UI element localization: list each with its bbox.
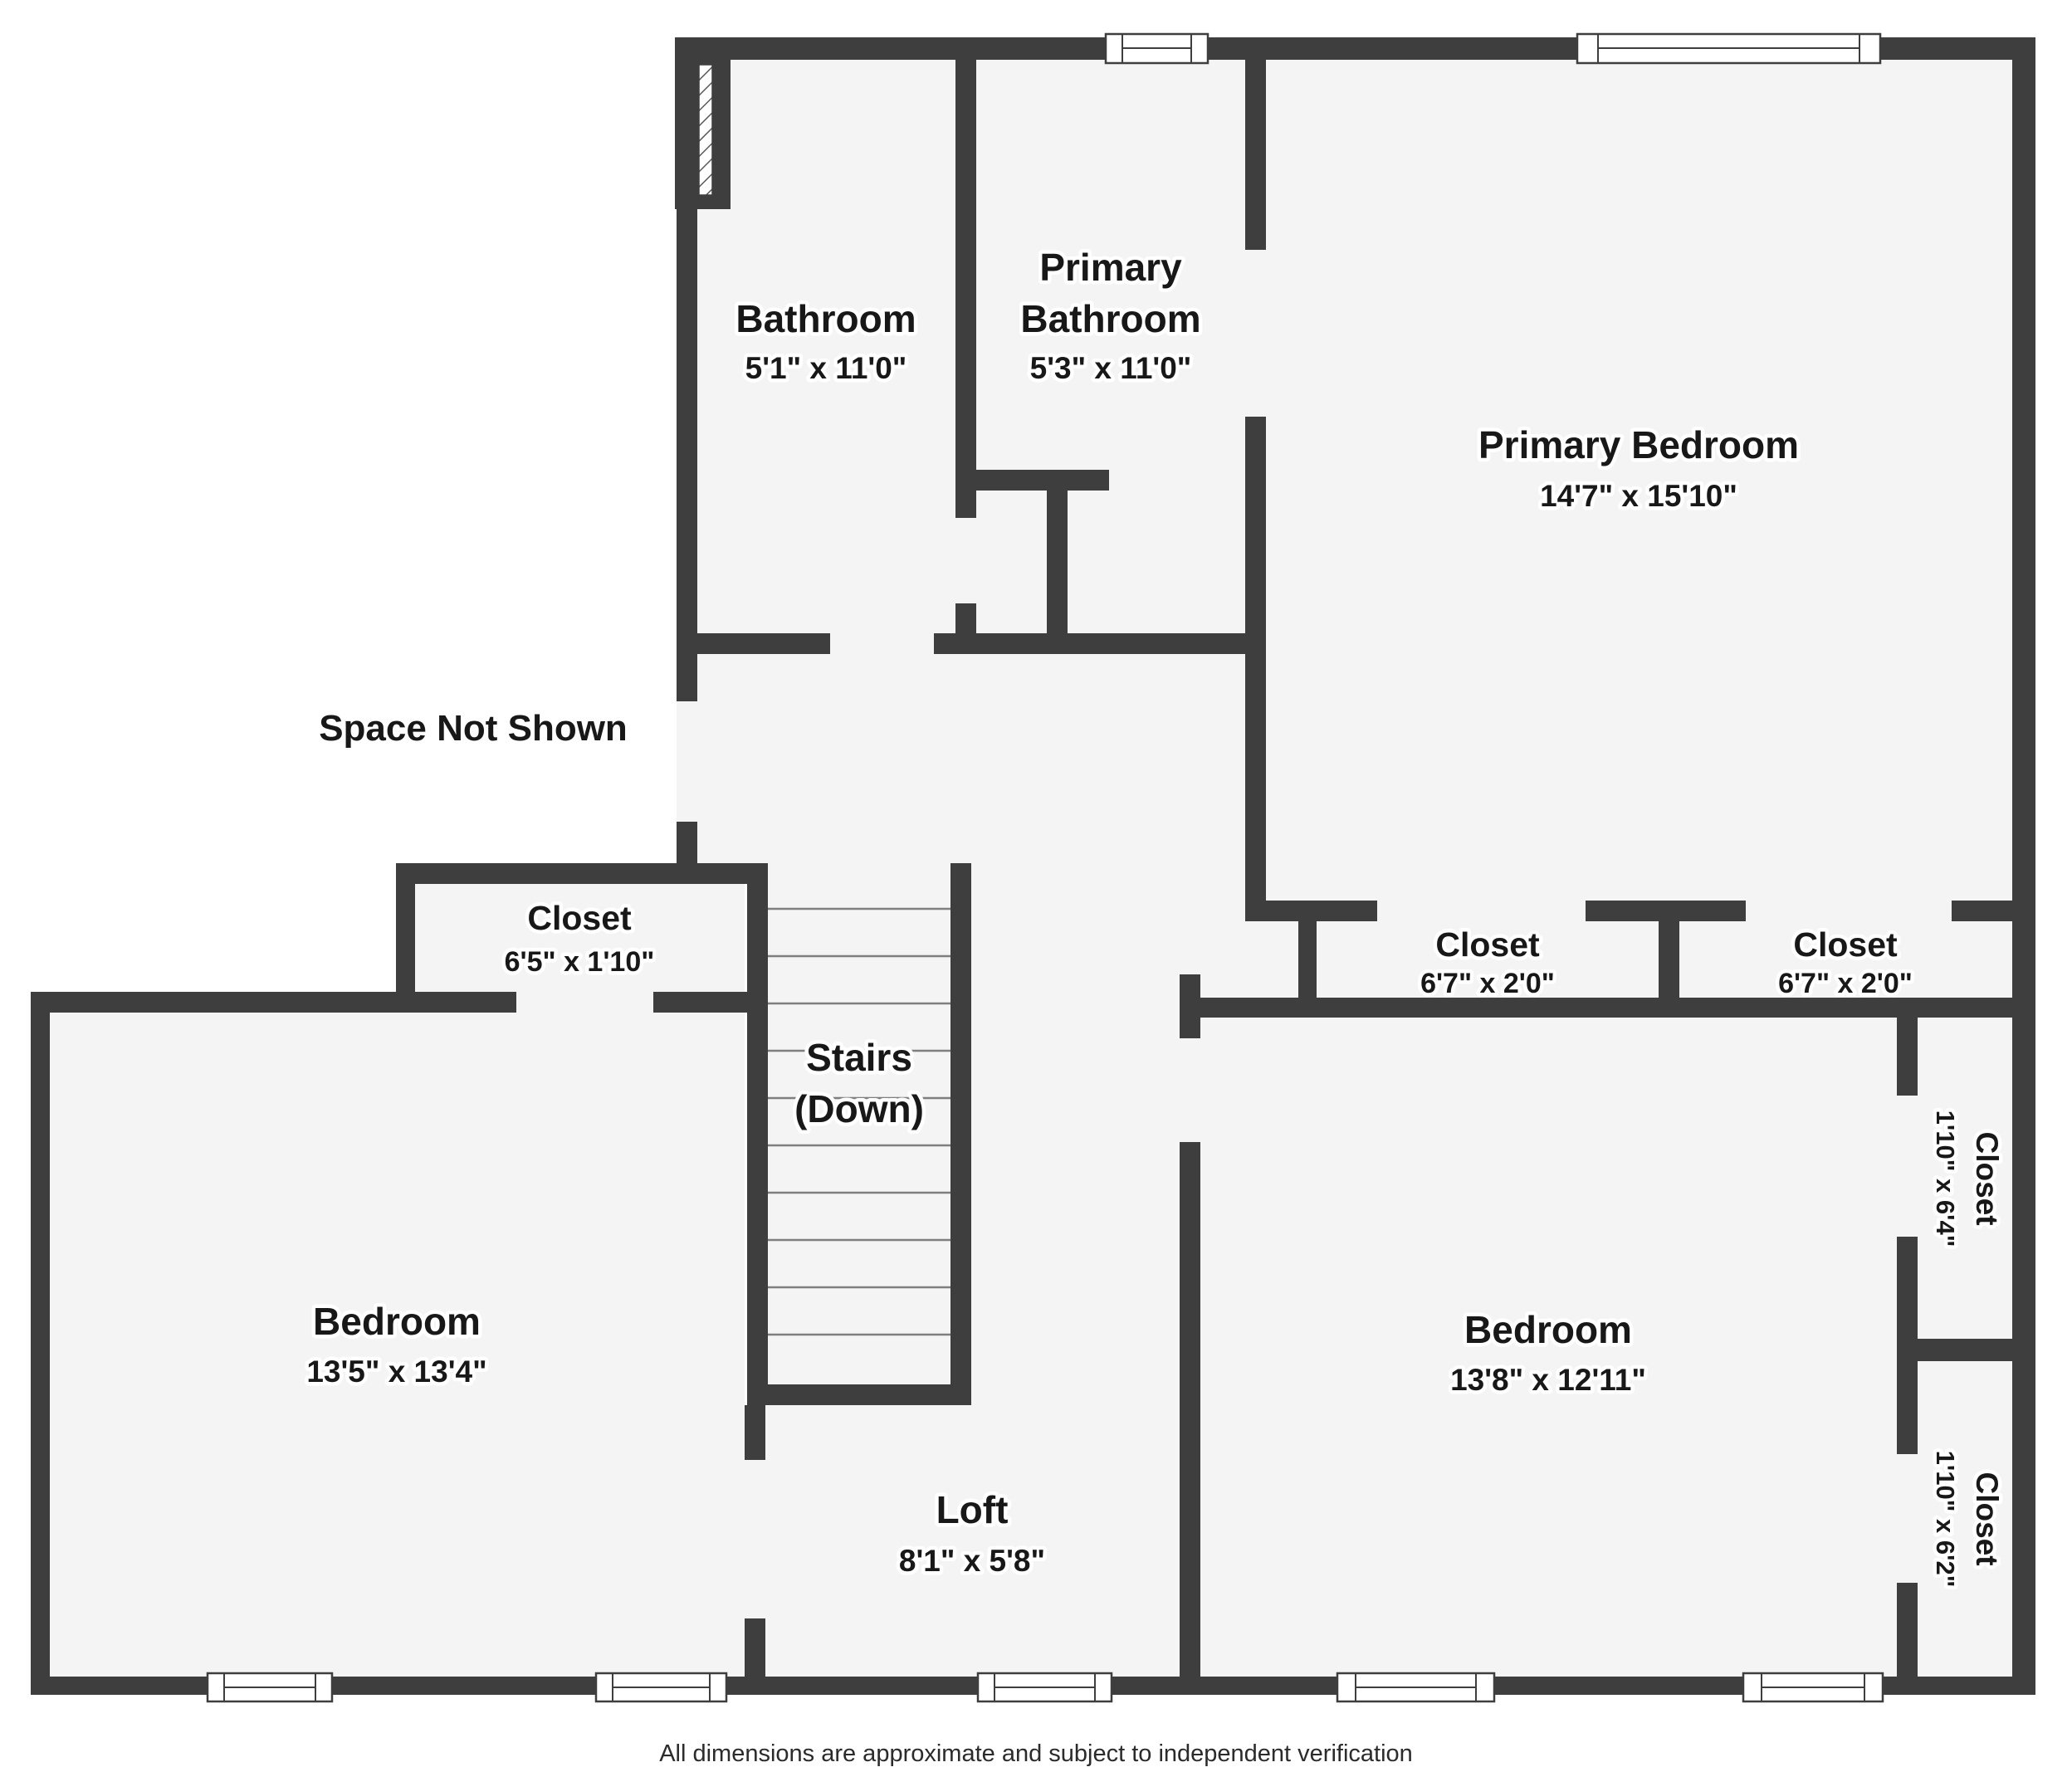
label-stairs-line1: Stairs <box>806 1036 912 1079</box>
label-closet-primary-right-name: Closet <box>1793 925 1898 964</box>
door-opening-bathroom <box>830 633 934 654</box>
label-bathroom-dims: 5'1" x 11'0" <box>745 351 907 385</box>
window <box>1337 1673 1494 1701</box>
door-opening-primary-bathroom <box>1245 250 1266 417</box>
wall-exterior-right <box>2012 37 2035 1695</box>
wall-primary-bedroom-left <box>1245 37 1266 921</box>
footer-disclaimer: All dimensions are approximate and subje… <box>659 1740 1413 1767</box>
wall-stairwell-left <box>747 863 768 1405</box>
window <box>1106 34 1208 63</box>
label-closet-primary-left-name: Closet <box>1435 925 1540 964</box>
room-area-hall-landing <box>697 633 1245 863</box>
label-bedroom-right-dims: 13'8" x 12'11" <box>1450 1363 1646 1397</box>
label-closet-right-upper-name: Closet <box>1970 1131 2004 1225</box>
label-loft-dims: 8'1" x 5'8" <box>899 1544 1045 1578</box>
label-closet-primary-right-dims: 6'7" x 2'0" <box>1778 968 1913 999</box>
wall-closet-hall-left <box>396 863 415 1013</box>
wall-closet-row-bottom <box>1180 998 2035 1018</box>
room-area-corridor-lower <box>971 998 1180 1405</box>
label-loft-name: Loft <box>936 1488 1009 1531</box>
wall-vestibule-stub <box>966 470 1109 491</box>
label-bathroom-name: Bathroom <box>735 297 916 340</box>
wall-bedroom-left-top <box>31 992 764 1013</box>
window <box>208 1673 332 1701</box>
wall-stairwell-right <box>950 863 971 1405</box>
label-closet-hall-dims: 6'5" x 1'10" <box>505 946 655 978</box>
label-closet-right-upper-dims: 1'10" x 6'4" <box>1931 1111 1960 1247</box>
wall-stairwell-bottom <box>747 1384 971 1405</box>
wall-closet-hall-top <box>396 863 764 884</box>
door-opening-closet-primary-right <box>1746 901 1952 921</box>
label-space-not-shown: Space Not Shown <box>319 708 628 749</box>
label-stairs-line2: (Down) <box>794 1087 924 1130</box>
door-opening-closet-primary-left <box>1377 901 1586 921</box>
wall-closet-primary-left-wall <box>1298 921 1317 998</box>
room-area-bedroom-left <box>50 1013 745 1677</box>
door-opening-loft-bedroom <box>745 1460 765 1618</box>
window <box>596 1673 726 1701</box>
wall-bedroom-left-left <box>31 992 50 1695</box>
label-bedroom-left-dims: 13'5" x 13'4" <box>306 1355 486 1389</box>
floor-plan-canvas: Bathroom 5'1" x 11'0" Primary Bathroom 5… <box>0 0 2072 1772</box>
door-opening-hall-left <box>677 701 697 822</box>
label-closet-primary-left-dims: 6'7" x 2'0" <box>1420 968 1555 999</box>
label-primary-bathroom-name2: Bathroom <box>1020 297 1200 340</box>
label-closet-right-lower-dims: 1'10" x 6'2" <box>1931 1451 1960 1588</box>
label-closet-hall-name: Closet <box>527 899 632 937</box>
room-area-loft <box>765 1405 1180 1677</box>
window <box>1743 1673 1883 1701</box>
wall-vestibule-nook <box>1047 491 1068 633</box>
room-area-corridor-upper <box>971 863 1245 921</box>
label-primary-bathroom-dims: 5'3" x 11'0" <box>1030 351 1192 385</box>
room-area-corridor-notch <box>971 921 1298 998</box>
label-closet-right-lower-name: Closet <box>1970 1472 2004 1565</box>
floor-plan-page: Bathroom 5'1" x 11'0" Primary Bathroom 5… <box>0 0 2072 1772</box>
door-opening-closet-right-upper <box>1897 1096 1918 1237</box>
window <box>978 1673 1112 1701</box>
label-bedroom-right-name: Bedroom <box>1464 1308 1632 1351</box>
wall-closet-column-divider <box>1897 1339 2035 1361</box>
door-opening-closet-right-lower <box>1897 1454 1918 1583</box>
label-primary-bedroom-name: Primary Bedroom <box>1478 423 1799 466</box>
door-opening-bedroom-right <box>1180 1038 1200 1142</box>
chimney-hatch <box>699 65 712 195</box>
door-opening-bathroom-nook <box>955 518 976 603</box>
door-opening-closet-hall <box>516 992 653 1013</box>
window <box>1577 34 1880 63</box>
room-area-bathroom <box>697 60 955 633</box>
room-area-primary-bathroom <box>976 60 1245 633</box>
label-primary-bathroom-name1: Primary <box>1039 246 1182 289</box>
label-primary-bedroom-dims: 14'7" x 15'10" <box>1540 479 1737 513</box>
label-bedroom-left-name: Bedroom <box>313 1300 481 1343</box>
